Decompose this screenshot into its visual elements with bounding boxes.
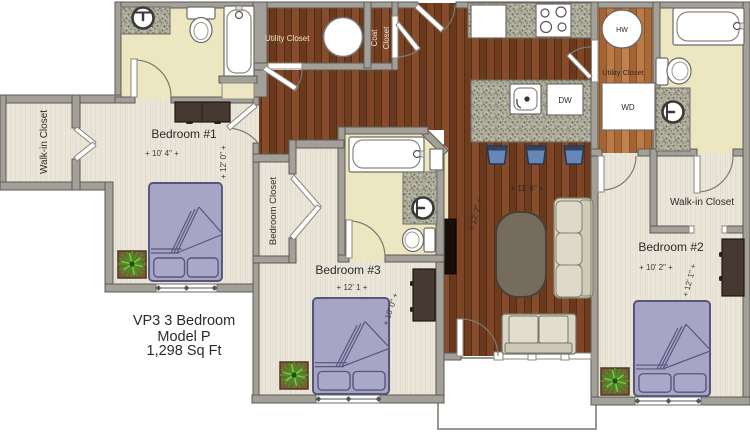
svg-text:Bedroom #2: Bedroom #2: [638, 240, 704, 254]
svg-text:+ 10' 2" +: + 10' 2" +: [639, 263, 673, 272]
svg-text:Walk-in Closet: Walk-in Closet: [670, 197, 734, 208]
svg-text:Utility Closet: Utility Closet: [602, 68, 645, 77]
svg-text:Coat: Coat: [370, 29, 379, 47]
svg-text:Bedroom Closet: Bedroom Closet: [268, 177, 279, 245]
svg-text:+ 12' 0" +: + 12' 0" +: [219, 145, 228, 179]
svg-text:HW: HW: [616, 27, 628, 34]
svg-text:Walk-in Closet: Walk-in Closet: [39, 110, 50, 174]
svg-text:VP3 3 Bedroom: VP3 3 Bedroom: [133, 313, 235, 329]
svg-text:+ 10' 4" +: + 10' 4" +: [145, 149, 179, 158]
svg-text:+ 11' 6" +: + 11' 6" +: [510, 184, 543, 193]
svg-text:Closet: Closet: [382, 26, 391, 49]
svg-text:1,298 Sq Ft: 1,298 Sq Ft: [147, 343, 222, 359]
svg-text:DW: DW: [558, 96, 572, 105]
svg-text:+ 12' 1 +: + 12' 1 +: [337, 283, 368, 292]
svg-text:Utility Closet: Utility Closet: [265, 34, 310, 43]
svg-text:Bedroom #1: Bedroom #1: [151, 127, 217, 141]
svg-text:Bedroom #3: Bedroom #3: [315, 263, 381, 277]
svg-text:WD: WD: [621, 103, 635, 112]
